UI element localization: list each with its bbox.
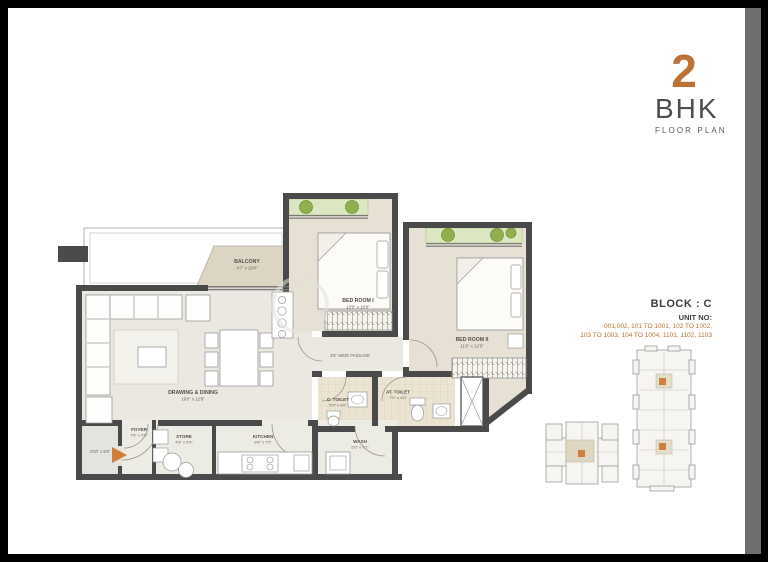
highlight-unit-2 [659, 443, 666, 450]
label-ctoilet: C. TOILET [327, 397, 349, 402]
page: BALCONY 4'7" x 20'0" DRAWING & DINING 19… [0, 0, 768, 562]
plan-type-header: 2 BHK FLOOR PLAN [655, 50, 713, 135]
label-kitchen: KITCHEN [253, 434, 274, 439]
label-passage: 3'6" WIDE PASSAGE [330, 353, 370, 358]
block-info: BLOCK : C UNIT NO: 001,002, 101 TO 1001,… [580, 298, 712, 341]
bhk-label: BHK [655, 95, 713, 123]
dim-bedroom1: 13'0" x 10'6" [346, 305, 370, 310]
key-plan-tall [633, 346, 695, 491]
label-bedroom2: BED ROOM II [456, 337, 489, 343]
label-wash: WASH [353, 439, 367, 444]
floor-plan-label: FLOOR PLAN [655, 126, 713, 135]
key-plan-cross [546, 422, 618, 484]
highlight-unit-cross [578, 450, 585, 457]
unit-numbers-line2: 103 TO 1003, 104 TO 1004, 1101, 1102, 11… [580, 331, 712, 340]
dim-drawing-dining: 19'0" x 12'8" [181, 397, 205, 402]
dim-wash: 5'9" x 7'7" [351, 445, 369, 450]
floor-plan: BALCONY 4'7" x 20'0" DRAWING & DINING 19… [0, 0, 768, 562]
label-balcony: BALCONY [234, 259, 260, 265]
dim-kitchen: 9'8" x 7'5" [254, 440, 272, 445]
dim-ctoilet: 5'0" x 4'0" [329, 403, 347, 408]
dim-balcony: 4'7" x 20'0" [236, 266, 258, 271]
rug-coffee-table [114, 330, 178, 384]
kitchen-counter [218, 452, 312, 474]
dim-store: 4'6" x 5'9" [175, 440, 193, 445]
unit-no-label: UNIT NO: [580, 313, 712, 322]
dim-foyer: 7'6" x 5'0" [130, 433, 148, 438]
label-bedroom1: BED ROOM I [342, 298, 374, 304]
dim-entry: 4'10" x 5'5" [90, 449, 111, 454]
label-foyer: FOYER [131, 427, 148, 432]
wash-sink [326, 452, 350, 474]
dim-attoilet: 7'0" x 4'0" [389, 395, 407, 400]
unit-numbers-line1: 001,002, 101 TO 1001, 102 TO 1002, [580, 322, 712, 331]
label-attoilet: AT. TOILET [386, 390, 410, 395]
entry-floor [82, 420, 122, 474]
label-store: STORE [176, 434, 192, 439]
bhk-number: 2 [655, 50, 713, 94]
dim-bedroom2: 11'6" x 12'0" [460, 344, 484, 349]
block-title: BLOCK : C [580, 298, 712, 310]
wardrobe1 [325, 311, 392, 330]
planter-bedroom2 [426, 228, 522, 243]
label-drawing-dining: DRAWING & DINING [168, 390, 218, 396]
planter-bedroom1 [289, 199, 368, 215]
highlight-unit-1 [659, 378, 666, 385]
shaft [461, 377, 483, 426]
dining-set [205, 330, 273, 386]
wardrobe2 [452, 358, 526, 378]
